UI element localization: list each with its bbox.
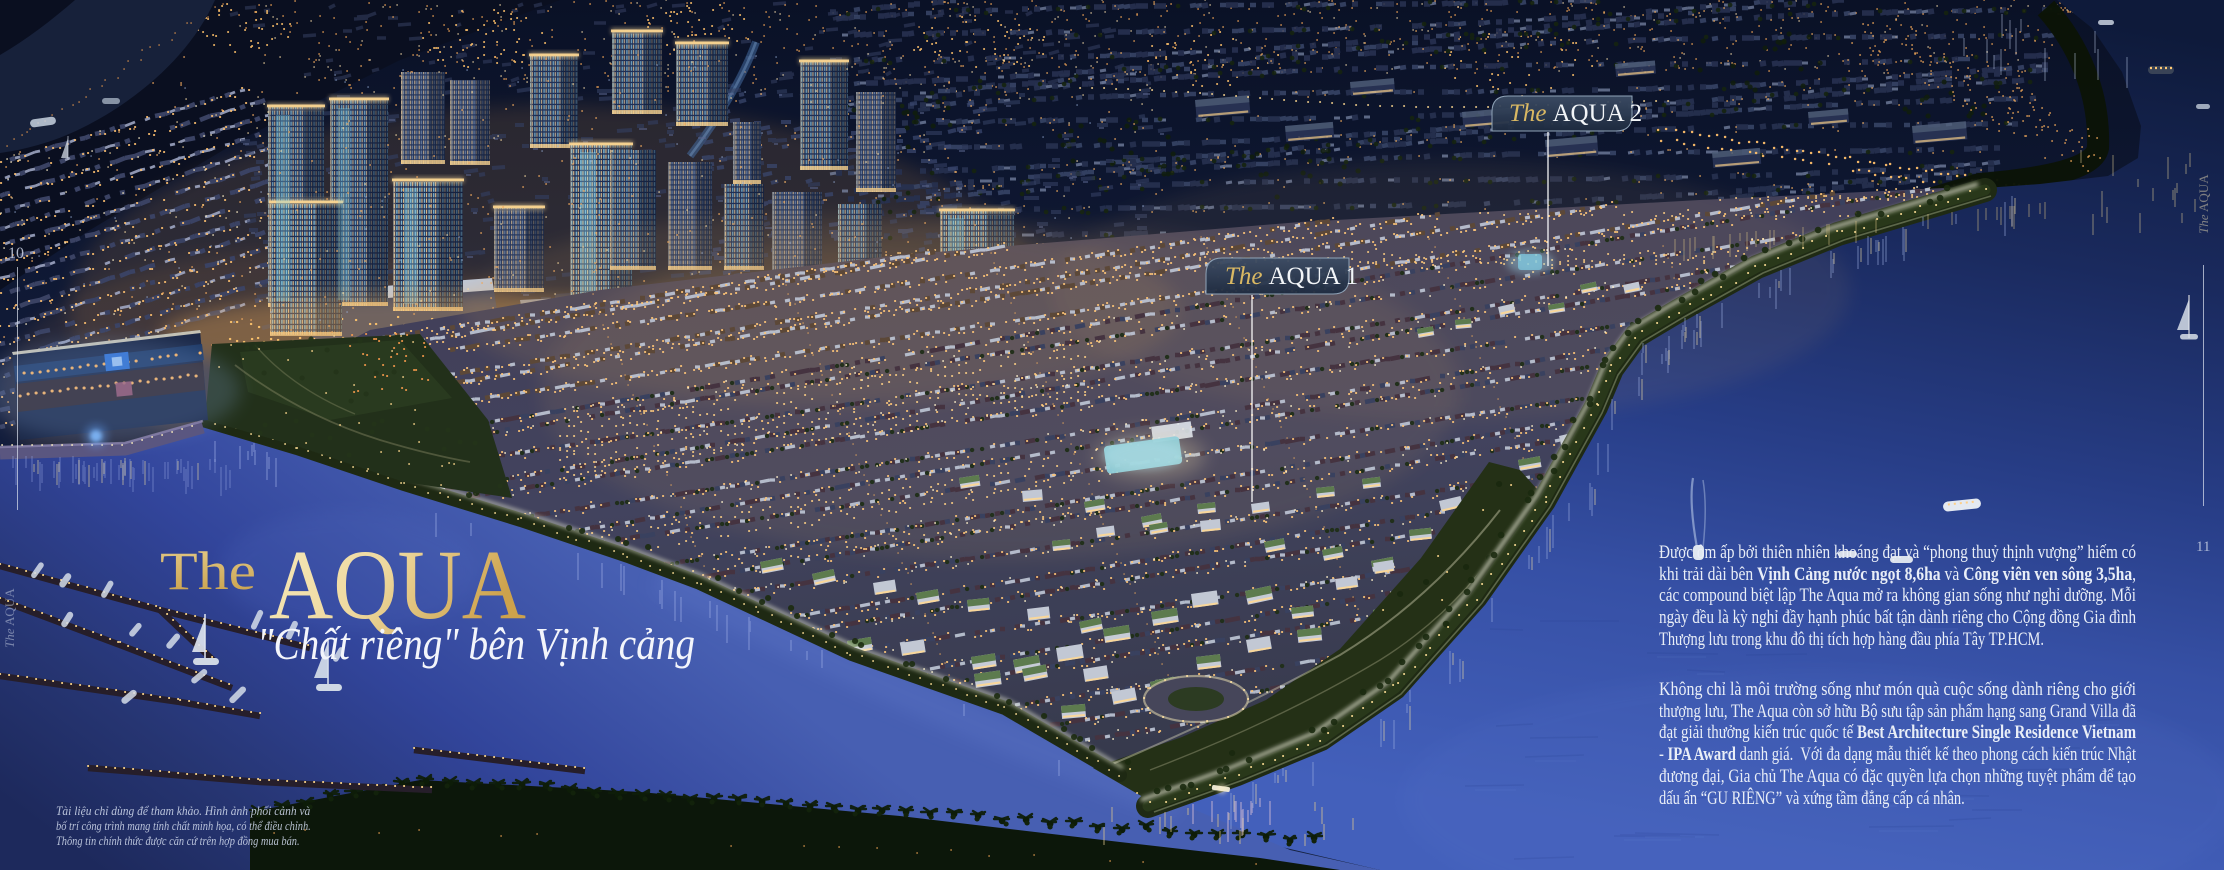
svg-text:TheAQUA 2: TheAQUA 2 xyxy=(1509,100,1642,127)
svg-text:The AQUA: The AQUA xyxy=(2196,174,2211,234)
svg-text:10: 10 xyxy=(8,245,24,262)
svg-text:The AQUA: The AQUA xyxy=(2,588,17,648)
svg-text:TheAQUA 1: TheAQUA 1 xyxy=(1225,263,1358,290)
svg-text:The: The xyxy=(160,541,256,601)
svg-text:"Chất riêng" bên Vịnh cảng: "Chất riêng" bên Vịnh cảng xyxy=(257,618,695,669)
